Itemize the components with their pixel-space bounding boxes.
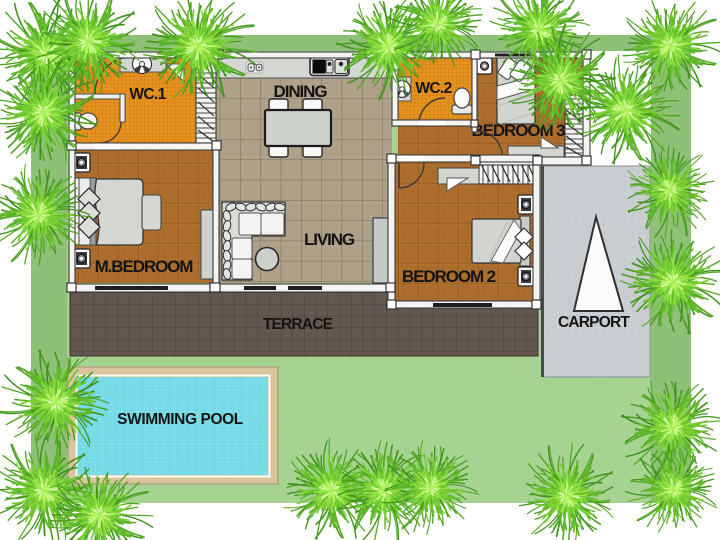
svg-text:WC.1: WC.1 — [129, 86, 166, 103]
svg-text:LIVING: LIVING — [304, 230, 355, 249]
svg-text:SWIMMING POOL: SWIMMING POOL — [117, 411, 243, 428]
svg-text:TERRACE: TERRACE — [263, 316, 333, 333]
svg-text:BEDROOM 2: BEDROOM 2 — [402, 267, 496, 286]
svg-text:M.BEDROOM: M.BEDROOM — [95, 257, 194, 276]
svg-text:WC.2: WC.2 — [415, 80, 451, 97]
svg-text:CARPORT: CARPORT — [558, 314, 630, 331]
svg-text:DINING: DINING — [274, 82, 328, 101]
